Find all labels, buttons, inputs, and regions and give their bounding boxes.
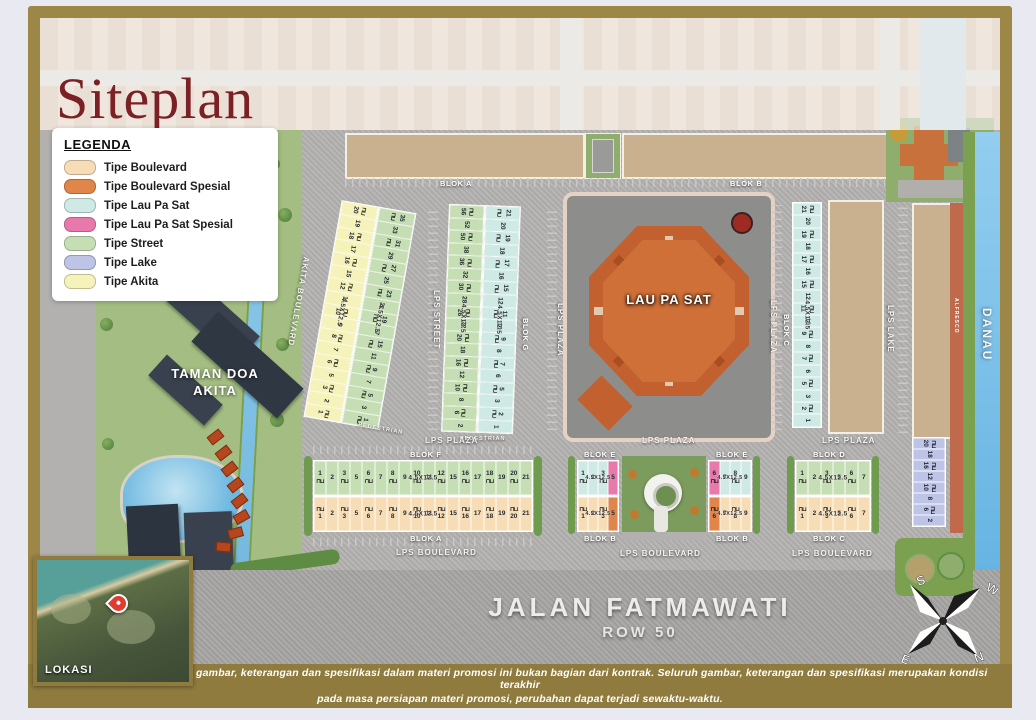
unit-icon: ⊓⊔	[375, 288, 382, 296]
unit-number: 19	[799, 230, 806, 237]
blok-a-row: 4.5X12.5 1⊓⊔23⊓⊔56⊓⊔78⊓⊔910⊓⊔1112⊓⊔1516⊓…	[313, 496, 533, 532]
taman-doa-line1: TAMAN DOA	[171, 366, 258, 381]
unit-cell: 2⊓⊔	[478, 407, 512, 421]
park-path	[622, 532, 706, 540]
row-50-label: ROW 50	[390, 624, 890, 641]
unit-number: 15	[799, 280, 806, 287]
compass-s: S	[914, 574, 927, 589]
legend-swatch	[64, 236, 96, 251]
legend-item: Tipe Boulevard	[64, 158, 266, 177]
blok-a-row-label: BLOK A	[410, 534, 442, 543]
unit-icon: ⊓⊔	[355, 232, 362, 240]
unit-number: 2	[456, 423, 463, 427]
alfresco-strip	[950, 203, 963, 533]
unit-number: 28	[460, 296, 467, 303]
legend-label: Tipe Lau Pa Sat Spesial	[104, 219, 233, 231]
legend-label: Tipe Akita	[104, 276, 158, 288]
legend-swatch	[64, 160, 96, 175]
green-endcap	[304, 456, 312, 536]
compass-rose: S W N E	[888, 574, 998, 664]
unit-size-label: 4.5X12.5	[717, 475, 742, 481]
unit-number: 10	[921, 484, 928, 491]
legend-swatch	[64, 217, 96, 232]
compass-e: E	[899, 651, 913, 664]
unit-number: 16	[342, 256, 350, 264]
unit-cell: 18⊓⊔	[484, 497, 496, 531]
unit-cell: 15⊓⊔	[483, 281, 517, 295]
unit-number: 27	[388, 264, 396, 272]
unit-icon: ⊓⊔	[359, 389, 366, 397]
lps-boulevard-label-w: LPS BOULEVARD	[396, 548, 477, 557]
blok-d-row: 4.5X12.5 1⊓⊔23⊓⊔56⊓⊔7	[795, 460, 871, 496]
unit-icon: ⊓⊔	[806, 380, 812, 388]
lps-plaza-label-f: LPS PLAZA	[425, 436, 478, 445]
unit-number: 7	[364, 379, 371, 384]
unit-cell: 15	[447, 497, 459, 531]
unit-number: 11	[368, 352, 376, 360]
jalan-fatmawati-label: JALAN FATMAWATI	[390, 592, 890, 623]
commercial-bar-lakeside	[912, 203, 952, 439]
unit-cell: 1⊓⊔	[314, 461, 326, 495]
orange-tree	[690, 468, 699, 477]
unit-number: 17	[474, 475, 481, 482]
unit-number: 6	[452, 411, 459, 415]
unit-number: 2	[813, 475, 817, 482]
unit-number: 8	[391, 471, 395, 478]
unit-number: 6	[712, 514, 716, 521]
unit-cell: 6	[480, 369, 514, 383]
unit-number: 1	[318, 471, 322, 478]
unit-number: 3	[360, 404, 367, 409]
unit-number: 16	[921, 462, 928, 469]
monument-base	[654, 506, 668, 532]
unit-number: 2	[330, 475, 334, 482]
unit-cell: 2	[913, 515, 945, 526]
unit-number: 7	[379, 475, 383, 482]
unit-icon: ⊓⊔	[389, 212, 396, 220]
unit-number: 7	[862, 475, 866, 482]
unit-number: 1	[316, 410, 323, 415]
map-patch	[51, 594, 91, 624]
commercial-bar-east	[828, 200, 884, 434]
unit-size-label: 4.5X12.5	[408, 475, 437, 482]
unit-number: 8	[804, 344, 811, 348]
legend-item: Tipe Boulevard Spesial	[64, 177, 266, 196]
unit-cell: 7	[858, 461, 870, 495]
unit-number: 7	[862, 511, 866, 518]
legend-box: LEGENDA Tipe BoulevardTipe Boulevard Spe…	[52, 128, 278, 301]
unit-icon: ⊓⊔	[808, 230, 814, 238]
unit-icon: ⊓⊔	[493, 335, 499, 343]
unit-icon: ⊓⊔	[848, 479, 856, 485]
unit-cell: 18	[793, 240, 821, 252]
unit-number: 2	[330, 511, 334, 518]
unit-cell: 17⊓⊔	[793, 253, 821, 265]
unit-number: 18	[926, 451, 933, 458]
monument-park	[622, 448, 706, 540]
legend-swatch	[64, 198, 96, 213]
unit-icon: ⊓⊔	[493, 284, 499, 292]
unit-size-label: 4.5X12.5	[818, 475, 847, 482]
unit-number: 1	[581, 514, 585, 521]
unit-number: 2	[926, 519, 933, 523]
unit-icon: ⊓⊔	[494, 259, 500, 267]
unit-icon: ⊓⊔	[930, 484, 936, 492]
unit-icon: ⊓⊔	[365, 479, 373, 485]
unit-cell: 21⊓⊔	[793, 203, 821, 215]
legend-item: Tipe Lau Pa Sat Spesial	[64, 215, 266, 234]
unit-number: 9	[799, 332, 806, 336]
unit-icon: ⊓⊔	[806, 404, 812, 412]
unit-cell: 5⊓⊔	[793, 377, 821, 389]
unit-number: 7	[799, 357, 806, 361]
park-path	[622, 448, 706, 456]
blok-e-right-label: BLOK E	[716, 450, 748, 459]
orange-tree	[690, 506, 699, 515]
unit-cell: 18	[913, 449, 945, 460]
blok-c-column-label: BLOK C	[782, 314, 791, 346]
unit-cell: 15	[447, 461, 459, 495]
unit-icon: ⊓⊔	[351, 258, 358, 266]
unit-cell: 6⊓⊔	[362, 461, 374, 495]
unit-number: 12	[804, 293, 811, 300]
unit-cell: 18	[445, 343, 479, 357]
unit-cell: 12	[444, 368, 478, 382]
unit-icon: ⊓⊔	[462, 479, 470, 485]
unit-number: 2	[813, 511, 817, 518]
unit-number: 17	[799, 255, 806, 262]
unit-cell: 30⊓⊔	[447, 280, 481, 294]
lps-street-label: LPS STREET	[432, 290, 441, 349]
unit-number: 20	[510, 514, 517, 521]
unit-size-label: 4.5X12.5	[585, 475, 610, 481]
unit-number: 9	[744, 511, 748, 518]
unit-number: 25	[382, 276, 390, 284]
blok-d-label: BLOK D	[813, 450, 845, 459]
unit-size-label: 4.5X12.5	[408, 511, 437, 518]
unit-icon: ⊓⊔	[806, 330, 812, 338]
unit-number: 18	[486, 471, 493, 478]
map-patch	[107, 610, 155, 644]
unit-number: 50	[458, 233, 465, 240]
unit-icon: ⊓⊔	[367, 339, 374, 347]
taman-doa-akita-label: TAMAN DOA AKITA	[150, 366, 280, 400]
unit-number: 31	[392, 239, 400, 247]
unit-icon: ⊓⊔	[510, 479, 518, 485]
unit-number: 9	[403, 511, 407, 518]
unit-number: 21	[799, 206, 806, 213]
unit-number: 15	[344, 270, 352, 278]
unit-cell: 50⊓⊔	[449, 230, 483, 244]
blok-e-left-row: 4.5X12.5 1⊓⊔23⊓⊔5	[577, 460, 619, 496]
unit-number: 6	[325, 359, 332, 364]
unit-number: 6	[367, 471, 371, 478]
unit-number: 17	[349, 244, 357, 252]
unit-cell: 16⊓⊔	[444, 356, 478, 370]
unit-number: 5	[355, 511, 359, 518]
unit-number: 32	[461, 271, 468, 278]
unit-number: 3	[804, 394, 811, 398]
lau-pa-sat-roof	[589, 226, 749, 396]
lau-pa-sat-label: LAU PA SAT	[567, 292, 771, 307]
unit-cell: 2	[326, 497, 338, 531]
orange-tree	[630, 510, 639, 519]
unit-number: 1	[318, 514, 322, 521]
unit-number: 12	[438, 514, 445, 521]
blok-b-left-row: 4.5X12.5 1⊓⊔23⊓⊔5	[577, 496, 619, 532]
unit-icon: ⊓⊔	[437, 479, 445, 485]
unit-icon: ⊓⊔	[459, 409, 465, 417]
faded-road	[880, 18, 900, 130]
unit-number: 8	[391, 514, 395, 521]
unit-cell: 21⊓⊔	[486, 206, 520, 220]
unit-size-label: 4.5X12.5	[804, 300, 811, 329]
orange-tree	[628, 470, 637, 479]
blok-g-label: BLOK G	[521, 318, 530, 351]
unit-number: 1	[492, 424, 499, 428]
lps-boulevard-label-c: LPS BOULEVARD	[620, 549, 701, 558]
blok-b-right-row: 4.5X12.5 6⊓⊔78⊓⊔9	[708, 496, 752, 532]
akita-street-block: 4.5X12.5 20⊓⊔1918⊓⊔1716⊓⊔1512⊓⊔1110⊓⊔98⊓…	[303, 200, 416, 430]
unit-cell: 56⊓⊔	[450, 205, 484, 219]
unit-cell: 7	[375, 461, 387, 495]
unit-icon: ⊓⊔	[490, 410, 496, 418]
unit-cell: 19⊓⊔	[793, 228, 821, 240]
unit-cell: 8	[913, 493, 945, 504]
unit-number: 2	[799, 406, 806, 410]
unit-icon: ⊓⊔	[798, 479, 806, 485]
unit-cell: 20⊓⊔	[508, 461, 520, 495]
unit-number: 21	[522, 511, 529, 518]
unit-cell: 18	[484, 244, 518, 258]
unit-number: 3	[342, 471, 346, 478]
red-rooftop-feature	[731, 212, 753, 234]
blok-f-label: BLOK F	[410, 450, 442, 459]
unit-icon: ⊓⊔	[486, 479, 494, 485]
lokasi-inset-map: LOKASI	[33, 556, 193, 686]
unit-cell: 1	[793, 414, 821, 426]
unit-number: 1	[581, 471, 585, 478]
unit-number: 6	[804, 369, 811, 373]
unit-icon: ⊓⊔	[335, 333, 342, 341]
unit-number: 15	[450, 475, 457, 482]
legend-items: Tipe BoulevardTipe Boulevard SpesialTipe…	[64, 158, 266, 291]
blok-f-row: 4.5X12.5 1⊓⊔23⊓⊔56⊓⊔78⊓⊔910⊓⊔1112⊓⊔1516⊓…	[313, 460, 533, 496]
unit-cell: 1⊓⊔	[796, 497, 808, 531]
blok-g-block: 4.5X12.5 56⊓⊔5250⊓⊔3836⊓⊔3230⊓⊔2826⊓⊔222…	[441, 204, 521, 434]
legend-item: Tipe Akita	[64, 272, 266, 291]
unit-icon: ⊓⊔	[930, 440, 936, 448]
unit-cell: 10⊓⊔	[443, 381, 477, 395]
unit-number: 21	[504, 209, 511, 216]
unit-icon: ⊓⊔	[462, 384, 468, 392]
unit-cell: 20⊓⊔	[913, 438, 945, 449]
unit-cell: 1⊓⊔	[796, 461, 808, 495]
unit-cell: 19⊓⊔	[485, 231, 519, 245]
legend-label: Tipe Boulevard	[104, 162, 187, 174]
unit-cell: 8	[443, 393, 477, 407]
unit-number: 12	[338, 282, 346, 290]
unit-number: 6	[494, 374, 501, 378]
unit-cell: 6⊓⊔	[362, 497, 374, 531]
legend-title: LEGENDA	[64, 137, 266, 152]
unit-number: 1	[804, 419, 811, 423]
unit-number: 9	[403, 475, 407, 482]
unit-number: 33	[390, 226, 398, 234]
unit-icon: ⊓⊔	[495, 209, 501, 217]
green-endcap	[753, 456, 760, 534]
faded-road	[560, 18, 582, 130]
blok-e-right-row: 4.5X12.5 6⊓⊔78⊓⊔9	[708, 460, 752, 496]
unit-number: 30	[456, 283, 463, 290]
unit-cell: 20⊓⊔	[508, 497, 520, 531]
lps-boulevard-label-east: LPS BOULEVARD	[792, 549, 873, 558]
unit-icon: ⊓⊔	[462, 359, 468, 367]
blok-e-left-label: BLOK E	[584, 450, 616, 459]
unit-number: 3	[493, 399, 500, 403]
unit-cell: 7⊓⊔	[793, 352, 821, 364]
siteplan-page: TAMAN DOA AKITA BLOK A BLOK B LPS PLAZA	[0, 0, 1036, 720]
unit-cell: 16⊓⊔	[913, 460, 945, 471]
parking-ticks	[898, 205, 908, 433]
unit-number: 15	[375, 340, 383, 348]
unit-size-label: 4.5X12.5	[459, 304, 467, 333]
legend-label: Tipe Lake	[104, 257, 157, 269]
unit-cell: 17	[471, 497, 483, 531]
blok-c-laupasat-column: 4.5X12.5 21⊓⊔2019⊓⊔1817⊓⊔1615⊓⊔1211⊓⊔109…	[792, 202, 822, 428]
unit-cell: 1⊓⊔	[314, 497, 326, 531]
unit-number: 3	[342, 514, 346, 521]
legend-label: Tipe Boulevard Spesial	[104, 181, 230, 193]
unit-cell: 5	[350, 497, 362, 531]
unit-icon: ⊓⊔	[364, 364, 371, 372]
unit-icon: ⊓⊔	[930, 462, 936, 470]
unit-icon: ⊓⊔	[466, 258, 472, 266]
unit-size-label: 4.5X12.5	[717, 511, 742, 517]
compass-n: N	[972, 649, 986, 664]
unit-icon: ⊓⊔	[463, 334, 469, 342]
unit-number: 7	[498, 362, 505, 366]
lps-plaza-label-d: LPS PLAZA	[822, 436, 875, 445]
unit-cell: 7	[375, 497, 387, 531]
unit-number: 52	[463, 221, 470, 228]
unit-number: 6	[367, 514, 371, 521]
unit-number: 38	[462, 246, 469, 253]
unit-cell: 16⊓⊔	[459, 461, 471, 495]
unit-icon: ⊓⊔	[928, 506, 934, 514]
unit-number: 6	[921, 508, 928, 512]
unit-cell: 8	[481, 344, 515, 358]
parking-ticks	[772, 205, 782, 430]
unit-icon: ⊓⊔	[467, 233, 473, 241]
unit-number: 1	[800, 471, 804, 478]
unit-cell: 15⊓⊔	[793, 278, 821, 290]
unit-cell: 17⊓⊔	[484, 256, 518, 270]
unit-cell: 17	[471, 461, 483, 495]
blok-c-row: 4.5X12.5 1⊓⊔23⊓⊔56⊓⊔7	[795, 496, 871, 532]
green-endcap	[534, 456, 542, 536]
lps-lake-label: LPS LAKE	[886, 305, 895, 353]
blok-g-laupasat-column: 4.5X12.5 21⊓⊔2019⊓⊔1817⊓⊔1615⊓⊔1211⊓⊔109…	[477, 205, 521, 434]
unit-number: 10	[453, 384, 460, 391]
unit-icon: ⊓⊔	[346, 283, 353, 291]
blok-c-row-label: BLOK C	[813, 534, 845, 543]
unit-cell: 36⊓⊔	[448, 255, 482, 269]
tree	[278, 208, 292, 222]
unit-number: 9	[370, 367, 377, 372]
blok-b-label: BLOK B	[730, 179, 762, 188]
parking-ticks	[345, 178, 885, 187]
roof-wing	[577, 375, 632, 430]
unit-cell: 3	[793, 390, 821, 402]
unit-cell: 8⊓⊔	[387, 461, 399, 495]
taman-doa-line2: AKITA	[193, 383, 237, 398]
unit-icon: ⊓⊔	[316, 479, 324, 485]
lau-pa-sat-building: LAU PA SAT	[563, 192, 775, 442]
pedestrian-label: PEDESTRIAN	[358, 422, 404, 436]
unit-cell: 6⊓⊔	[443, 406, 477, 420]
unit-cell: 32	[447, 268, 481, 282]
unit-cell: 21	[520, 461, 532, 495]
unit-icon: ⊓⊔	[340, 479, 348, 485]
unit-icon: ⊓⊔	[808, 280, 814, 288]
unit-cell: 12	[913, 471, 945, 482]
unit-cell: 2	[326, 461, 338, 495]
unit-cell: 20	[793, 215, 821, 227]
unit-number: 6	[712, 471, 716, 478]
unit-number: 17	[474, 511, 481, 518]
unit-number: 20	[804, 218, 811, 225]
unit-number: 20	[921, 440, 928, 447]
unit-size-label: 4.5X12.5	[585, 511, 610, 517]
unit-number: 8	[926, 497, 933, 501]
unit-number: 19	[503, 235, 510, 242]
legend-swatch	[64, 179, 96, 194]
unit-number: 15	[501, 285, 508, 292]
unit-icon: ⊓⊔	[808, 255, 814, 263]
unit-cell: 8⊓⊔	[387, 497, 399, 531]
unit-number: 16	[454, 358, 461, 365]
unit-number: 2	[497, 412, 504, 416]
unit-cell: 7⊓⊔	[480, 357, 514, 371]
unit-icon: ⊓⊔	[322, 409, 329, 417]
unit-number: 18	[459, 346, 466, 353]
unit-number: 9	[499, 337, 506, 341]
unit-number: 6	[850, 471, 854, 478]
unit-number: 3	[320, 384, 327, 389]
unit-cell: 19	[496, 461, 508, 495]
unit-cell: 18⊓⊔	[484, 461, 496, 495]
unit-number: 36	[457, 258, 464, 265]
unit-size-label: 4.5X12.5	[495, 305, 503, 334]
unit-number: 12	[458, 371, 465, 378]
unit-number: 56	[459, 208, 466, 215]
green-endcap	[568, 456, 575, 534]
unit-number: 20	[499, 222, 506, 229]
blok-a-label: BLOK A	[440, 179, 472, 188]
unit-number: 18	[804, 243, 811, 250]
tree	[100, 318, 113, 331]
unit-number: 1	[800, 514, 804, 521]
tree	[102, 438, 114, 450]
legend-label: Tipe Street	[104, 238, 163, 250]
unit-number: 18	[347, 231, 355, 239]
unit-number: 7	[379, 511, 383, 518]
unit-icon: ⊓⊔	[360, 207, 367, 215]
unit-number: 8	[329, 334, 336, 339]
unit-icon: ⊓⊔	[468, 208, 474, 216]
unit-icon: ⊓⊔	[808, 205, 814, 213]
